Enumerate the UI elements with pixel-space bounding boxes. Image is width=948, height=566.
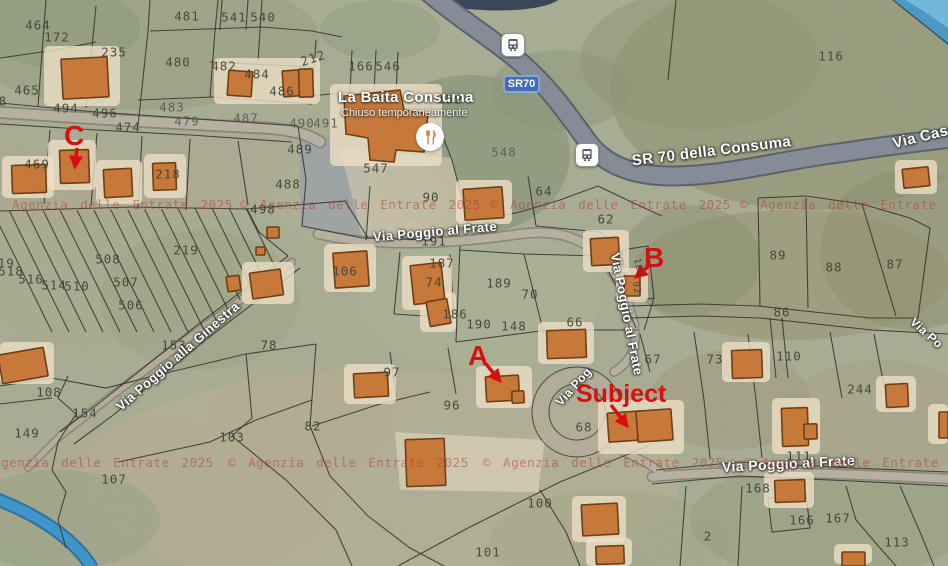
parcel-number: 491 <box>313 116 339 131</box>
parcel-number: 487 <box>233 111 259 126</box>
parcel-number: 87 <box>886 257 903 272</box>
parcel-number: 73 <box>706 352 723 367</box>
parcel-number: 465 <box>14 83 40 98</box>
parcel-number: 496 <box>92 106 118 121</box>
street-name-label: Via Poggio alla Ginestra <box>113 299 242 414</box>
parcel-number: 489 <box>287 142 313 157</box>
restaurant-icon[interactable] <box>416 123 444 151</box>
parcel-number: 186 <box>442 307 468 322</box>
parcel-number: 474 <box>115 120 141 135</box>
parcel-number: 101 <box>475 545 501 560</box>
copyright-watermark: © Agenzia delle Entrate 2025 <box>0 197 233 212</box>
parcel-number: 507 <box>113 275 139 290</box>
parcel-number: 100 <box>527 496 553 511</box>
copyright-watermark: © Agenzia delle Entrate 2025 <box>742 455 948 470</box>
parcel-number: 86 <box>773 305 790 320</box>
copyright-watermark: © Agenzia delle Entrate 2025 <box>740 197 948 212</box>
parcel-number: 167 <box>825 511 851 526</box>
parcel-number: 514 <box>41 278 67 293</box>
parcel-number: 116 <box>818 49 844 64</box>
copyright-watermark: © Agenzia delle Entrate 2025 <box>240 197 481 212</box>
parcel-number: 480 <box>165 55 191 70</box>
parcel-number: 484 <box>244 67 270 82</box>
parcel-number: 506 <box>118 298 144 313</box>
parcel-number: 62 <box>597 212 614 227</box>
parcel-number: 486 <box>269 84 295 99</box>
parcel-number: 103 <box>219 430 245 445</box>
parcel-number: 68 <box>575 420 592 435</box>
parcel-number: 547 <box>363 161 389 176</box>
parcel-number: 149 <box>14 426 40 441</box>
parcel-number: 469 <box>24 157 50 172</box>
parcel-number: 212 <box>299 47 328 69</box>
label-layer: La Baita Consuma Chiuso temporaneamente … <box>0 0 948 566</box>
parcel-number: 172 <box>44 30 70 45</box>
parcel-number: 189 <box>486 276 512 291</box>
parcel-number: 154 <box>72 406 98 421</box>
parcel-number: 483 <box>159 100 185 115</box>
parcel-number: 97 <box>383 365 400 380</box>
parcel-number: 106 <box>332 264 358 279</box>
parcel-number: 508 <box>95 252 121 267</box>
parcel-number: 546 <box>375 59 401 74</box>
parcel-number: 187 <box>429 256 455 271</box>
route-shield-sr70: SR70 <box>503 75 540 93</box>
marker-b: B <box>644 244 664 272</box>
parcel-number: 89 <box>769 248 786 263</box>
marker-a: A <box>468 342 488 370</box>
parcel-number: 78 <box>260 338 277 353</box>
copyright-watermark: © Agenzia delle Entrate 2025 <box>0 455 214 470</box>
parcel-number: 166 <box>789 513 815 528</box>
parcel-number: 70 <box>521 287 538 302</box>
copyright-watermark: © Agenzia delle Entrate 2025 <box>490 197 731 212</box>
parcel-number: 488 <box>275 177 301 192</box>
parcel-number: 490 <box>289 116 315 131</box>
parcel-number: 82 <box>304 419 321 434</box>
street-name-label: Via Po <box>907 315 945 351</box>
street-name-label: SR 70 della Consuma <box>631 133 792 169</box>
parcel-number: 494 <box>53 101 79 116</box>
parcel-number: 235 <box>101 45 127 60</box>
parcel-number: 152 <box>437 92 463 107</box>
parcel-number: 516 <box>18 272 44 287</box>
parcel-number: 166 <box>348 59 374 74</box>
marker-c: C <box>64 122 84 150</box>
parcel-number: 92 <box>630 281 642 295</box>
parcel-number: 482 <box>211 59 237 74</box>
parcel-number: 181 <box>631 258 644 279</box>
parcel-number: 510 <box>64 279 90 294</box>
bus-stop-icon[interactable] <box>575 143 599 167</box>
parcel-number: 74 <box>425 275 442 290</box>
parcel-number: 110 <box>776 349 802 364</box>
parcel-number: 96 <box>443 398 460 413</box>
bus-stop-icon[interactable] <box>501 33 525 57</box>
parcel-number: 219 <box>173 243 199 258</box>
parcel-number: 541 <box>221 10 247 25</box>
parcel-number: 479 <box>174 114 200 129</box>
cadastral-map-viewport[interactable]: La Baita Consuma Chiuso temporaneamente … <box>0 0 948 566</box>
parcel-number: 190 <box>466 317 492 332</box>
parcel-number: 168 <box>745 481 771 496</box>
parcel-number: 481 <box>174 9 200 24</box>
parcel-number: 8 <box>0 94 7 109</box>
parcel-number: 113 <box>884 535 910 550</box>
copyright-watermark: © Agenzia delle Entrate 2025 <box>483 455 724 470</box>
poi-status-label: Chiuso temporaneamente <box>341 107 468 119</box>
parcel-number: 2 <box>704 529 713 544</box>
parcel-number: 540 <box>250 10 276 25</box>
parcel-number: 66 <box>566 315 583 330</box>
parcel-number: 218 <box>155 167 181 182</box>
parcel-number: 548 <box>491 145 517 160</box>
parcel-number: 88 <box>825 260 842 275</box>
parcel-number: 108 <box>36 385 62 400</box>
parcel-number: 148 <box>501 319 527 334</box>
parcel-number: 107 <box>101 472 127 487</box>
parcel-number: 244 <box>847 382 873 397</box>
copyright-watermark: © Agenzia delle Entrate 2025 <box>228 455 469 470</box>
marker-subject: Subject <box>576 382 666 407</box>
parcel-number: 67 <box>644 352 661 367</box>
street-name-label: Via Cas <box>891 122 948 152</box>
